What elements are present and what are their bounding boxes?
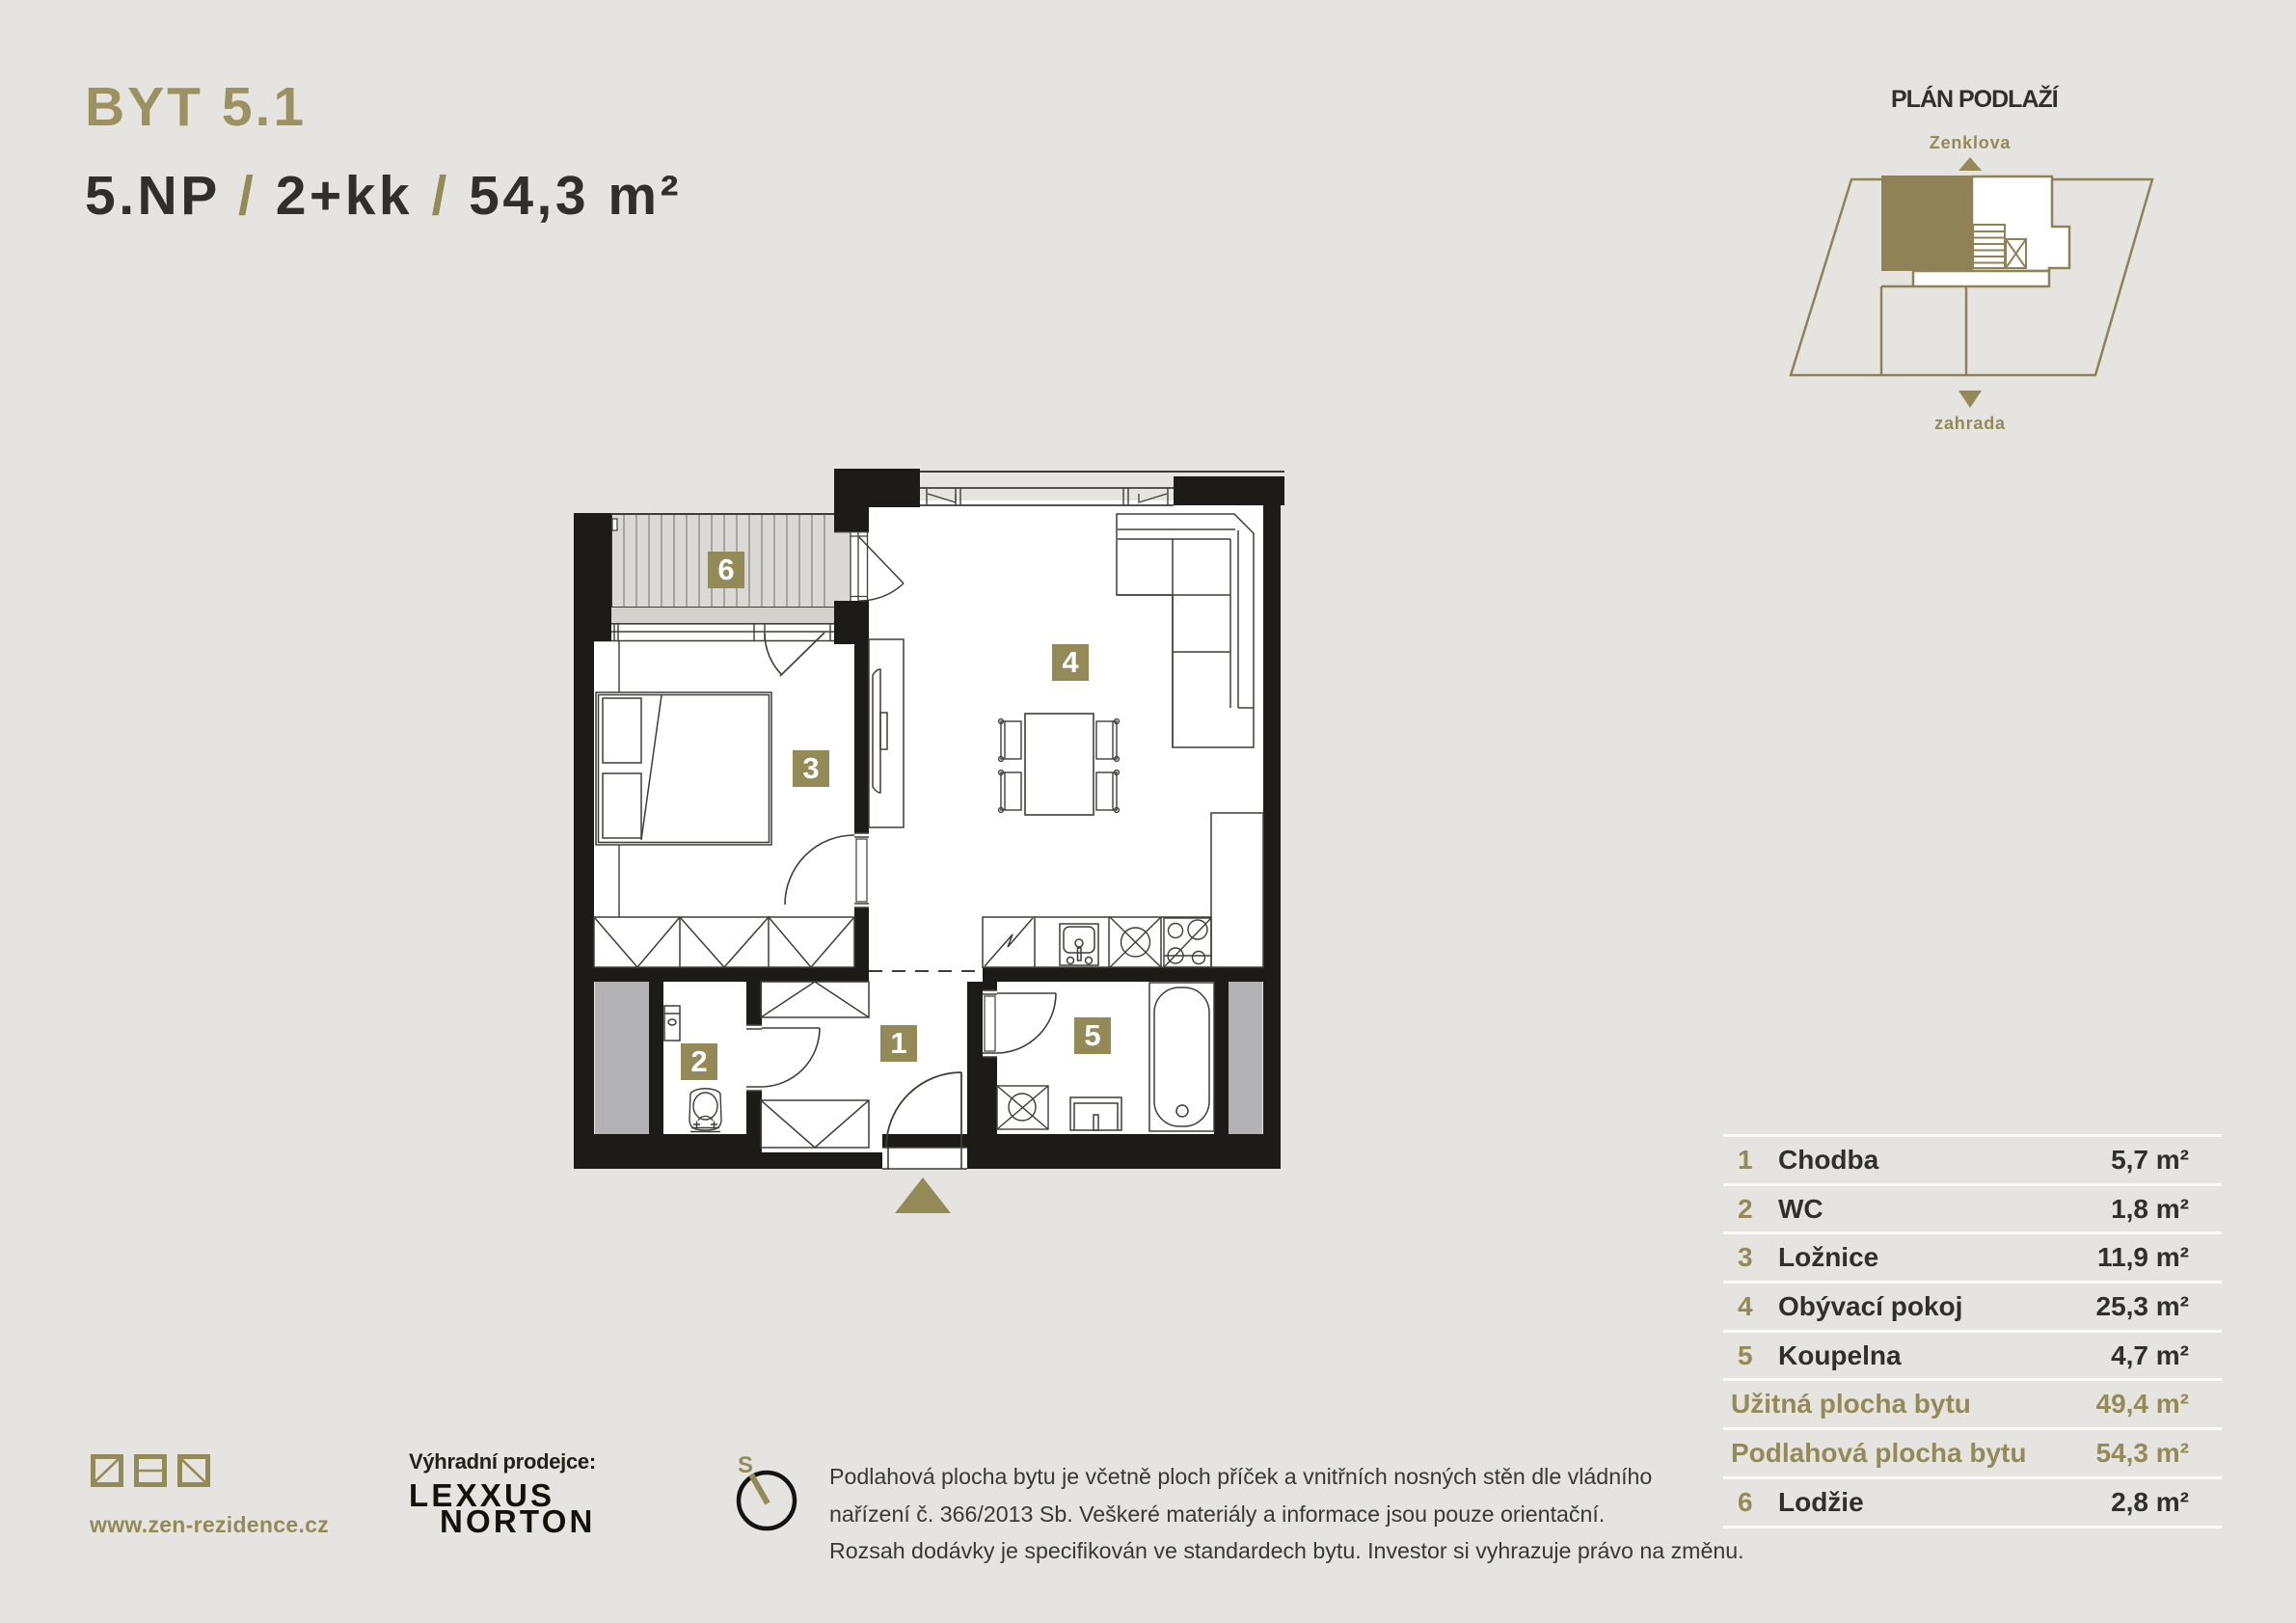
svg-text:2: 2 <box>690 1044 707 1078</box>
svg-text:6: 6 <box>717 553 734 586</box>
svg-text:5: 5 <box>1084 1018 1100 1052</box>
svg-text:3: 3 <box>802 751 819 785</box>
svg-text:S: S <box>738 1452 753 1478</box>
svg-text:4: 4 <box>1062 645 1079 679</box>
svg-text:1: 1 <box>890 1026 906 1060</box>
